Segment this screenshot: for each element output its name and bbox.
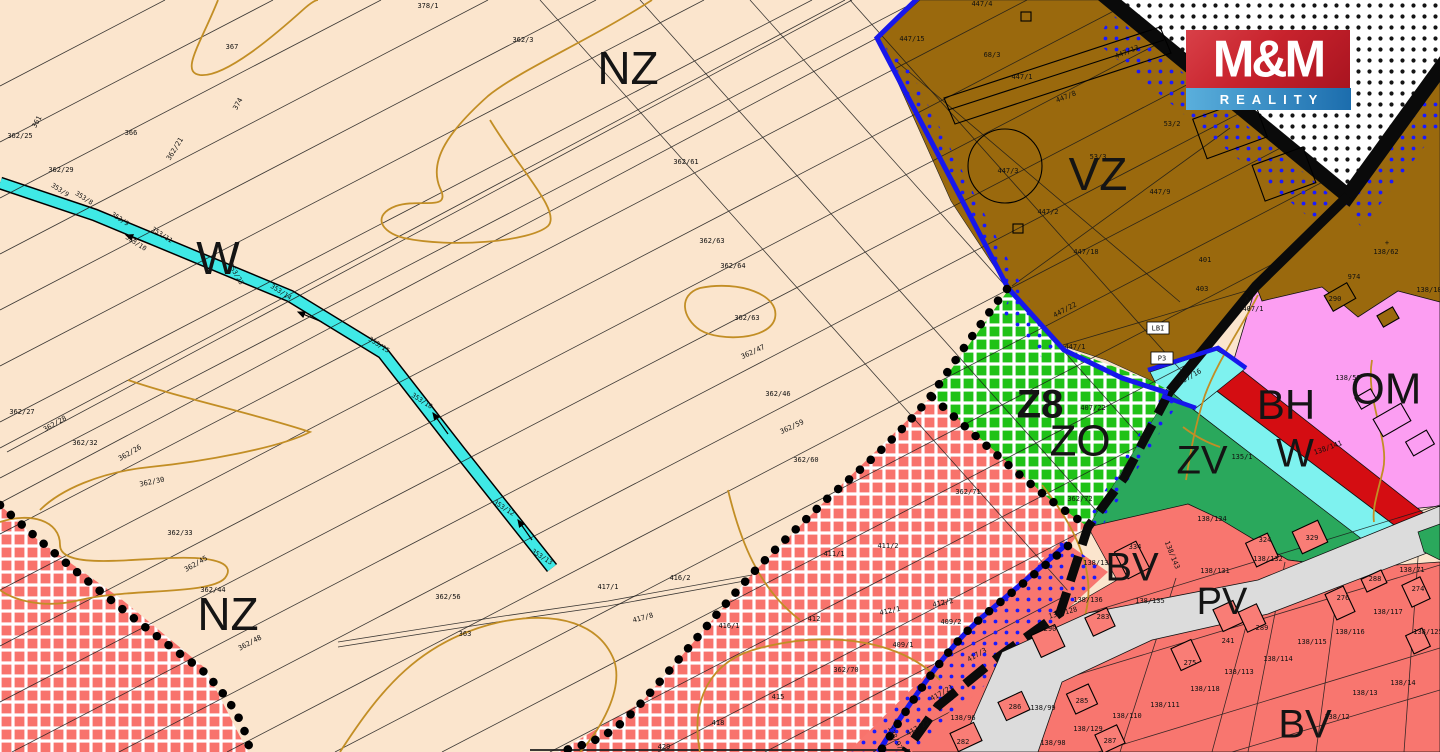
parcel-label: 362/25 (7, 132, 32, 140)
parcel-label: 367 (226, 43, 239, 51)
mm-reality-logo: M&M REALITY (1186, 30, 1351, 110)
parcel-label: 417/1 (597, 583, 618, 591)
parcel-label: 329 (1306, 534, 1319, 542)
parcel-label: + (1385, 239, 1389, 247)
mm-reality-logo-banner: REALITY (1186, 88, 1351, 110)
parcel-label: 447/3 (997, 167, 1018, 175)
parcel-label: 138/111 (1150, 701, 1180, 709)
parcel-label: 138/117 (1373, 608, 1403, 616)
parcel-label: 415 (772, 693, 785, 701)
parcel-label: 418 (712, 719, 725, 727)
parcel-label: 138/132 (1253, 555, 1283, 563)
parcel-label: 290 (1329, 295, 1342, 303)
parcel-label: 276 (1337, 594, 1350, 602)
parcel-label: 362/70 (833, 666, 858, 674)
parcel-label: 138/110 (1112, 712, 1142, 720)
parcel-label: 447/18 (1073, 248, 1098, 256)
parcel-label: 362/61 (673, 158, 698, 166)
parcel-label: 407/1 (1242, 305, 1263, 313)
zone-label: BV (1105, 546, 1159, 590)
parcel-label: 334 (1129, 543, 1142, 551)
parcel-label: 324 (1259, 536, 1272, 544)
parcel-label: 362/46 (765, 390, 790, 398)
parcel-label: 403 (1196, 285, 1209, 293)
zone-label: NZ (197, 588, 258, 640)
parcel-label: 138/18 (1416, 286, 1440, 294)
parcel-label: 447/2 (1037, 208, 1058, 216)
parcel-label: 288 (1369, 575, 1382, 583)
parcel-label: 282 (957, 738, 970, 746)
parcel-label: 138/116 (1335, 628, 1365, 636)
zone-label: OM (1351, 365, 1422, 414)
parcel-label: 362/71 (955, 488, 980, 496)
parcel-label: 138/134 (1197, 515, 1227, 523)
mm-reality-banner-text: REALITY (1213, 92, 1325, 107)
parcel-label: 366 (125, 129, 138, 137)
zone-label: BV (1278, 703, 1332, 747)
parcel-label: 447/1 (1064, 343, 1085, 351)
parcel-label: 138/59 (1335, 374, 1360, 382)
parcel-label: 429 (658, 743, 671, 751)
boxed-label: P3 (1158, 355, 1166, 363)
zoning-map-canvas: NZNZWVZZ8ZOZVBHWOMBVPVBV 367378/1362/336… (0, 0, 1440, 752)
boxed-label: LBI (1152, 325, 1165, 333)
zone-label: PV (1197, 581, 1248, 623)
parcel-label: 287 (1104, 737, 1117, 745)
parcel-label: 138/129 (1073, 725, 1103, 733)
parcel-label: 290 (1044, 625, 1057, 633)
parcel-label: 138/115 (1297, 638, 1327, 646)
parcel-label: 285 (1076, 697, 1089, 705)
parcel-label: 362/3 (512, 36, 533, 44)
parcel-label: 138/136 (1073, 596, 1103, 604)
zoning-map-viewport[interactable]: NZNZWVZZ8ZOZVBHWOMBVPVBV 367378/1362/336… (0, 0, 1440, 752)
parcel-label: 283 (1097, 613, 1110, 621)
parcel-label: 447/9 (1149, 188, 1170, 196)
parcel-label: 274 (1412, 585, 1425, 593)
parcel-label: 447/1 (1011, 73, 1032, 81)
parcel-label: 138/62 (1373, 248, 1398, 256)
parcel-label: 138/114 (1263, 655, 1293, 663)
parcel-label: 362/29 (48, 166, 73, 174)
parcel-label: 362/32 (72, 439, 97, 447)
parcel-label: 362/64 (720, 262, 745, 270)
parcel-label: 411/2 (877, 542, 898, 550)
parcel-label: 275 (1184, 659, 1197, 667)
parcel-label: 362/72 (1067, 495, 1092, 503)
parcel-label: 401 (1199, 256, 1212, 264)
parcel-label: 138/118 (1190, 685, 1220, 693)
parcel-label: 409/2 (940, 618, 961, 626)
parcel-label: 362/33 (167, 529, 192, 537)
parcel-label: 407/22 (1080, 404, 1105, 412)
parcel-label: 362/63 (699, 237, 724, 245)
parcel-label: 974 (1348, 273, 1361, 281)
parcel-label: 411/1 (823, 550, 844, 558)
parcel-label: 138/96 (950, 714, 975, 722)
parcel-label: 241 (1222, 637, 1235, 645)
parcel-label: 138/12 (1324, 713, 1349, 721)
parcel-label: 138/113 (1224, 668, 1254, 676)
parcel-label: 68/3 (984, 51, 1001, 59)
parcel-label: 362/60 (793, 456, 818, 464)
parcel-label: 138/98 (1040, 739, 1065, 747)
parcel-label: 138/125 (1413, 628, 1440, 636)
parcel-label: 289 (1256, 624, 1269, 632)
parcel-label: 416/2 (669, 574, 690, 582)
parcel-label: 138/99 (1030, 704, 1055, 712)
parcel-label: 412 (808, 615, 821, 623)
parcel-label: 286 (1009, 703, 1022, 711)
mm-reality-logo-text: M&M (1213, 29, 1323, 89)
parcel-label: 138/135 (1135, 597, 1165, 605)
zone-label: ZV (1176, 439, 1227, 483)
zone-label: NZ (597, 42, 658, 94)
parcel-label: 53/3 (1090, 153, 1107, 161)
parcel-label: 362/27 (9, 408, 34, 416)
parcel-label: 138/137 (1083, 559, 1113, 567)
parcel-label: 362/63 (734, 314, 759, 322)
mm-reality-logo-mark: M&M (1186, 30, 1350, 88)
zone-label: W (1276, 432, 1314, 476)
parcel-label: 416/1 (718, 622, 739, 630)
zone-label: ZO (1049, 417, 1110, 466)
parcel-label: 378/1 (417, 2, 438, 10)
parcel-label: 53/2 (1164, 120, 1181, 128)
parcel-label: 363 (459, 630, 472, 638)
parcel-label: 447/15 (899, 35, 924, 43)
parcel-label: 138/14 (1390, 679, 1415, 687)
parcel-label: 447/4 (971, 0, 992, 8)
parcel-label: 138/131 (1200, 567, 1230, 575)
parcel-label: 409/1 (892, 641, 913, 649)
parcel-label: 138/13 (1352, 689, 1377, 697)
parcel-label: 362/56 (435, 593, 460, 601)
parcel-label: 362/44 (200, 586, 225, 594)
parcel-label: 135/1 (1231, 453, 1252, 461)
zone-label: BH (1257, 381, 1315, 428)
parcel-label: 138/71 (1399, 566, 1424, 574)
